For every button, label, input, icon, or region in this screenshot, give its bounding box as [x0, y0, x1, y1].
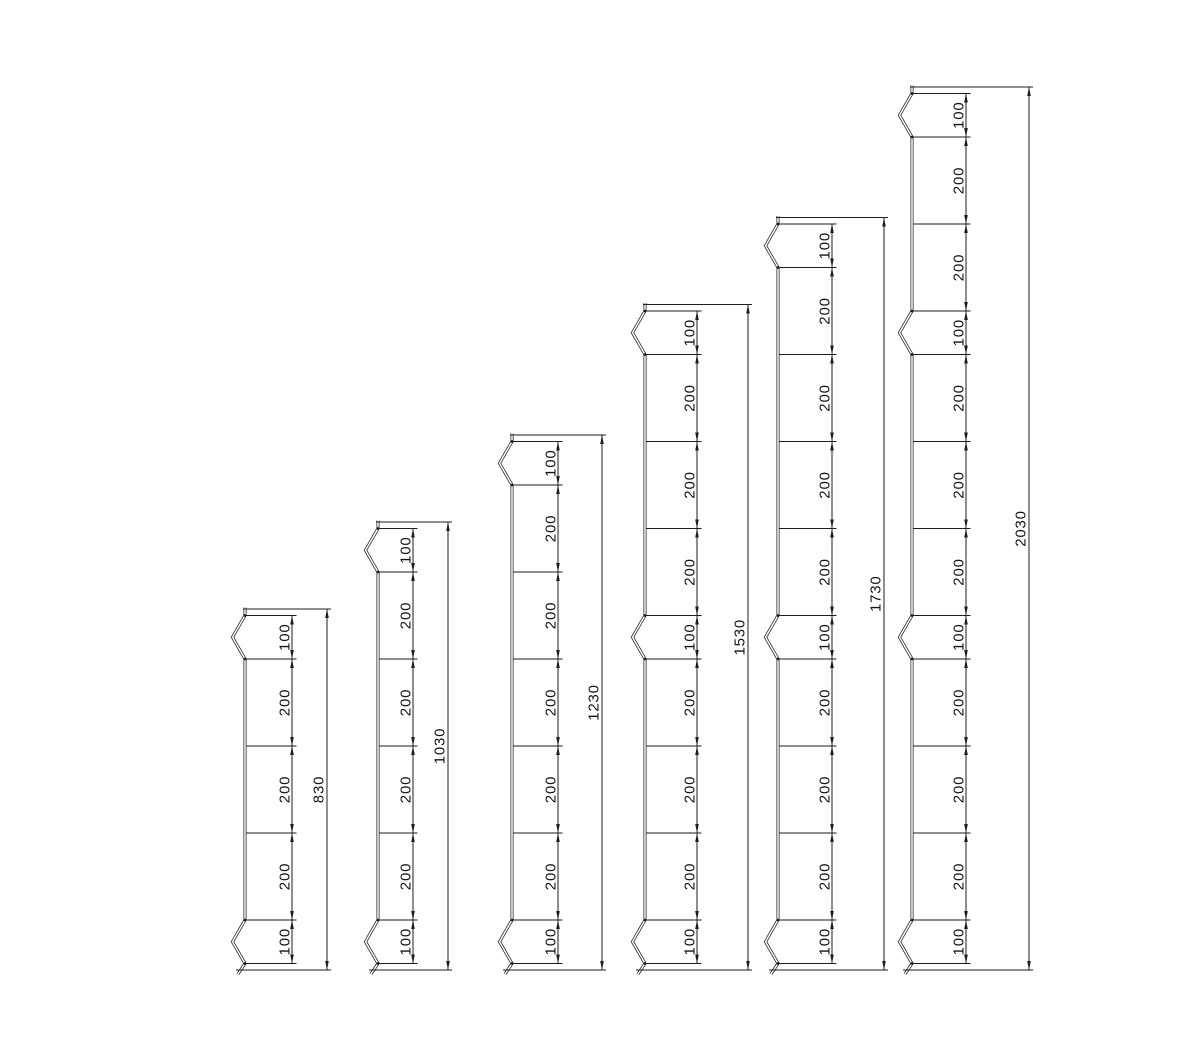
- dimension-arrow: [411, 920, 415, 929]
- notch-corner-dot: [244, 614, 247, 617]
- dimension-arrow: [695, 528, 699, 537]
- dimension-arrow: [411, 528, 415, 537]
- segment-dimension-label: 100: [682, 928, 699, 955]
- notch-corner-dot: [511, 440, 514, 443]
- segment-dimension-label: 200: [817, 689, 834, 716]
- dimension-arrow: [695, 833, 699, 842]
- notch-corner-dot: [644, 658, 647, 661]
- post-2030: 1002002001002002002001002002002001002030: [900, 86, 1034, 975]
- segment-dimension-label: 200: [277, 689, 294, 716]
- dimension-arrow: [830, 746, 834, 755]
- segment-dimension-label: 200: [543, 863, 560, 890]
- post-1230: 1002002002002002001001230: [500, 434, 607, 975]
- dimension-arrow: [830, 824, 834, 833]
- dimension-arrow: [695, 519, 699, 528]
- notch-corner-dot: [911, 658, 914, 661]
- dimension-arrow: [746, 304, 750, 313]
- segment-dimension-label: 100: [951, 319, 968, 346]
- notch-corner-dot: [644, 310, 647, 313]
- post-profile-outline: [900, 86, 913, 975]
- dimension-arrow: [411, 572, 415, 581]
- notch-corner-dot: [644, 962, 647, 965]
- dimension-arrow: [964, 93, 968, 102]
- notch-corner-dot: [777, 614, 780, 617]
- dimension-arrow: [446, 961, 450, 970]
- dimension-arrow: [830, 267, 834, 276]
- post-830: 100200200200100830: [233, 608, 332, 975]
- notch-corner-dot: [777, 962, 780, 965]
- segment-dimension-label: 200: [951, 471, 968, 498]
- segment-dimension-label: 200: [817, 558, 834, 585]
- dimension-arrow: [830, 833, 834, 842]
- post-profile-outline: [500, 434, 513, 975]
- dimension-arrow: [695, 606, 699, 615]
- segment-dimension-label: 200: [543, 776, 560, 803]
- segment-dimension-label: 100: [543, 450, 560, 477]
- segment-dimension-label: 100: [951, 624, 968, 651]
- dimension-arrow: [695, 659, 699, 668]
- dimension-arrow: [695, 441, 699, 450]
- post-profile-inner-face: [900, 86, 913, 975]
- dimension-arrow: [695, 354, 699, 363]
- segment-dimension-label: 200: [817, 776, 834, 803]
- notch-corner-dot: [911, 353, 914, 356]
- post-profile-inner-face: [500, 434, 513, 975]
- notch-corner-dot: [644, 919, 647, 922]
- overall-dimension-label: 1730: [868, 575, 885, 612]
- dimension-arrow: [325, 961, 329, 970]
- segment-dimension-label: 200: [277, 863, 294, 890]
- dimension-arrow: [964, 519, 968, 528]
- dimension-arrow: [411, 824, 415, 833]
- segment-dimension-label: 100: [543, 928, 560, 955]
- segment-dimension-label: 200: [817, 471, 834, 498]
- dimension-arrow: [830, 737, 834, 746]
- dimension-arrow: [556, 563, 560, 572]
- segment-dimension-label: 200: [543, 515, 560, 542]
- segment-dimension-label: 200: [951, 254, 968, 281]
- dimension-arrow: [556, 737, 560, 746]
- dimension-arrow: [964, 432, 968, 441]
- notch-corner-dot: [644, 614, 647, 617]
- segment-dimension-label: 200: [817, 297, 834, 324]
- segment-dimension-label: 200: [682, 384, 699, 411]
- post-1530: 1002002002001002002002001001530: [633, 303, 753, 974]
- dimension-arrow: [290, 615, 294, 624]
- dimension-arrow: [411, 659, 415, 668]
- dimension-arrow: [290, 911, 294, 920]
- notch-corner-dot: [377, 919, 380, 922]
- dimension-arrow: [695, 615, 699, 624]
- post-profile-outline: [366, 521, 379, 975]
- notch-corner-dot: [777, 658, 780, 661]
- segment-dimension-label: 200: [682, 863, 699, 890]
- segment-dimension-label: 200: [817, 863, 834, 890]
- dimension-arrow: [1027, 87, 1031, 96]
- dimension-arrow: [830, 606, 834, 615]
- overall-dimension-label: 1530: [732, 619, 749, 656]
- post-profile-outline: [633, 303, 646, 974]
- dimension-arrow: [695, 920, 699, 929]
- notch-corner-dot: [644, 353, 647, 356]
- dimension-arrow: [695, 746, 699, 755]
- segment-dimension-label: 200: [951, 776, 968, 803]
- segment-dimension-label: 200: [682, 776, 699, 803]
- dimension-arrow: [964, 833, 968, 842]
- dimension-arrow: [964, 302, 968, 311]
- notch-corner-dot: [377, 527, 380, 530]
- dimension-arrow: [446, 522, 450, 531]
- dimension-arrow: [830, 920, 834, 929]
- dimension-arrow: [411, 737, 415, 746]
- dimension-arrow: [830, 528, 834, 537]
- dimension-arrow: [964, 528, 968, 537]
- post-profile-inner-face: [366, 521, 379, 975]
- dimension-arrow: [411, 833, 415, 842]
- dimension-arrow: [964, 215, 968, 224]
- segment-dimension-label: 200: [951, 863, 968, 890]
- post-elevation-dimension-drawing: 1002002002001008301002002002002001001030…: [0, 0, 1201, 1048]
- segment-dimension-label: 100: [682, 624, 699, 651]
- dimension-arrow: [695, 311, 699, 320]
- segment-dimension-label: 100: [817, 928, 834, 955]
- segment-dimension-label: 100: [951, 928, 968, 955]
- segment-dimension-label: 200: [682, 558, 699, 585]
- dimension-arrow: [1027, 961, 1031, 970]
- dimension-arrow: [600, 435, 604, 444]
- dimension-arrow: [556, 746, 560, 755]
- dimension-arrow: [964, 746, 968, 755]
- post-1730: 1002002002002001002002002001001730: [766, 216, 889, 974]
- overall-dimension-label: 830: [311, 776, 328, 803]
- dimension-arrow: [556, 920, 560, 929]
- dimension-arrow: [964, 224, 968, 233]
- dimension-arrow: [556, 824, 560, 833]
- segment-dimension-label: 100: [277, 624, 294, 651]
- segment-dimension-label: 100: [951, 102, 968, 129]
- segment-dimension-label: 100: [398, 928, 415, 955]
- notch-corner-dot: [777, 919, 780, 922]
- dimension-arrow: [964, 615, 968, 624]
- post-1030: 1002002002002001001030: [366, 521, 453, 975]
- dimension-arrow: [556, 833, 560, 842]
- segment-dimension-label: 100: [817, 232, 834, 259]
- dimension-arrow: [746, 961, 750, 970]
- notch-corner-dot: [244, 919, 247, 922]
- dimension-arrow: [882, 961, 886, 970]
- post-profile-outline: [233, 608, 246, 975]
- dimension-arrow: [964, 311, 968, 320]
- notch-corner-dot: [511, 919, 514, 922]
- dimension-arrow: [830, 432, 834, 441]
- segment-dimension-label: 200: [817, 384, 834, 411]
- dimension-arrow: [290, 833, 294, 842]
- dimension-arrow: [830, 615, 834, 624]
- dimension-arrow: [830, 345, 834, 354]
- dimension-arrow: [964, 824, 968, 833]
- post-profile-inner-face: [233, 608, 246, 975]
- notch-corner-dot: [377, 962, 380, 965]
- segment-dimension-label: 200: [951, 384, 968, 411]
- notch-corner-dot: [911, 136, 914, 139]
- dimension-arrow: [830, 659, 834, 668]
- dimension-arrow: [290, 659, 294, 668]
- segment-dimension-label: 200: [951, 558, 968, 585]
- dimension-arrow: [411, 650, 415, 659]
- dimension-arrow: [695, 737, 699, 746]
- dimension-arrow: [695, 432, 699, 441]
- overall-dimension-label: 2030: [1013, 510, 1030, 547]
- notch-corner-dot: [911, 310, 914, 313]
- dimension-arrow: [830, 911, 834, 920]
- segment-dimension-label: 100: [682, 319, 699, 346]
- notch-corner-dot: [777, 266, 780, 269]
- dimension-arrow: [600, 961, 604, 970]
- overall-dimension-label: 1030: [432, 728, 449, 765]
- dimension-arrow: [556, 911, 560, 920]
- segment-dimension-label: 200: [543, 602, 560, 629]
- segment-dimension-label: 200: [951, 689, 968, 716]
- dimension-arrow: [830, 441, 834, 450]
- dimension-arrow: [290, 824, 294, 833]
- notch-corner-dot: [511, 484, 514, 487]
- segment-dimension-label: 100: [277, 928, 294, 955]
- dimension-arrow: [830, 224, 834, 233]
- segment-dimension-label: 100: [398, 537, 415, 564]
- dimension-arrow: [325, 609, 329, 618]
- dimension-arrow: [556, 659, 560, 668]
- notch-corner-dot: [377, 571, 380, 574]
- drawing-canvas: 1002002002001008301002002002002001001030…: [0, 0, 1201, 1048]
- segment-dimension-label: 200: [398, 776, 415, 803]
- dimension-arrow: [964, 920, 968, 929]
- dimension-arrow: [556, 572, 560, 581]
- segment-dimension-label: 200: [543, 689, 560, 716]
- overall-dimension-label: 1230: [586, 684, 603, 721]
- dimension-arrow: [964, 354, 968, 363]
- segment-dimension-label: 200: [277, 776, 294, 803]
- segment-dimension-label: 200: [682, 689, 699, 716]
- post-profile-inner-face: [766, 216, 779, 974]
- segment-dimension-label: 200: [682, 471, 699, 498]
- notch-corner-dot: [511, 962, 514, 965]
- post-profile-outline: [766, 216, 779, 974]
- notch-corner-dot: [911, 614, 914, 617]
- dimension-arrow: [882, 217, 886, 226]
- dimension-arrow: [556, 441, 560, 450]
- dimension-arrow: [695, 824, 699, 833]
- dimension-arrow: [964, 137, 968, 146]
- notch-corner-dot: [911, 962, 914, 965]
- notch-corner-dot: [911, 92, 914, 95]
- dimension-arrow: [964, 737, 968, 746]
- dimension-arrow: [964, 659, 968, 668]
- dimension-arrow: [556, 485, 560, 494]
- notch-corner-dot: [911, 919, 914, 922]
- segment-dimension-label: 200: [398, 602, 415, 629]
- dimension-arrow: [695, 911, 699, 920]
- notch-corner-dot: [244, 962, 247, 965]
- dimension-arrow: [411, 746, 415, 755]
- dimension-arrow: [964, 606, 968, 615]
- dimension-arrow: [964, 441, 968, 450]
- dimension-arrow: [290, 920, 294, 929]
- segment-dimension-label: 100: [817, 624, 834, 651]
- notch-corner-dot: [777, 223, 780, 226]
- dimension-arrow: [290, 746, 294, 755]
- dimension-arrow: [290, 737, 294, 746]
- segment-dimension-label: 200: [398, 863, 415, 890]
- segment-dimension-label: 200: [398, 689, 415, 716]
- notch-corner-dot: [244, 658, 247, 661]
- dimension-arrow: [411, 911, 415, 920]
- dimension-arrow: [830, 519, 834, 528]
- segment-dimension-label: 200: [951, 167, 968, 194]
- dimension-arrow: [830, 354, 834, 363]
- dimension-arrow: [964, 911, 968, 920]
- dimension-arrow: [556, 650, 560, 659]
